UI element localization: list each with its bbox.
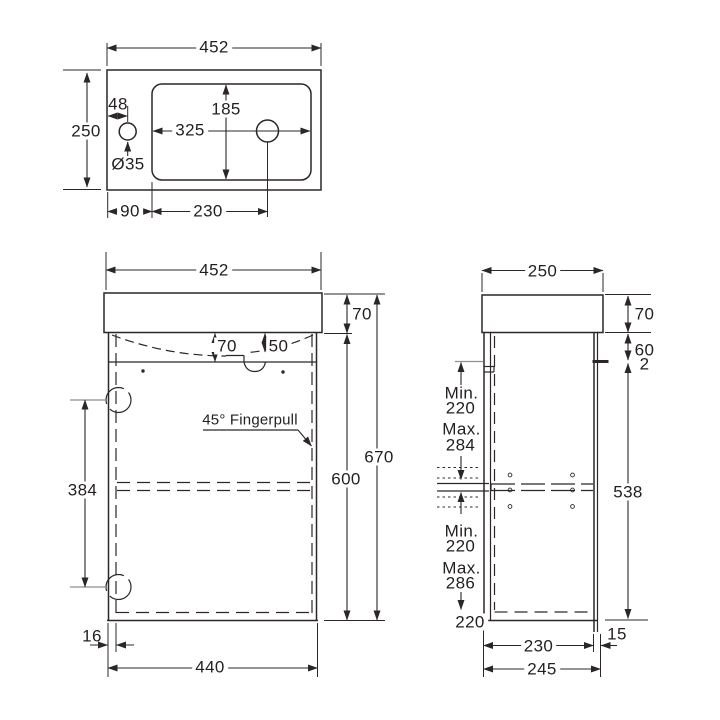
waste-offset-label: 230 — [190, 203, 226, 220]
bottom-value-label: 220 — [452, 613, 488, 630]
bowl-left-label: 70 — [214, 337, 240, 354]
door-width-label: 440 — [192, 659, 228, 676]
side-depth-label: 250 — [525, 262, 561, 279]
top-depth-label: 250 — [68, 123, 104, 140]
vanity-technical-drawing: 452 250 48 185 325 Ø35 90 230 452 70 70 … — [0, 0, 720, 720]
upper-max-value: 284 — [446, 436, 476, 453]
carcass-height-label: 538 — [610, 483, 646, 500]
basin-slab-side — [482, 295, 603, 333]
screw-dot-right — [281, 370, 284, 373]
front-width-label: 452 — [196, 262, 232, 279]
screw-dot-left — [141, 369, 144, 372]
base-depth-label: 230 — [521, 637, 557, 654]
fingerpull-note: 45° Fingerpull — [202, 413, 298, 428]
front-view-dimensions — [70, 252, 385, 677]
hinge-top — [106, 388, 131, 413]
side-view — [482, 295, 609, 632]
bowl-hidden-line-left — [112, 335, 226, 356]
tap-diameter-label: Ø35 — [111, 155, 144, 172]
waste-trap — [244, 362, 266, 372]
side-basin-height-label: 70 — [635, 306, 655, 323]
overall-depth-label: 245 — [524, 661, 560, 678]
gap-label: 2 — [640, 356, 650, 373]
tap-hole — [119, 123, 136, 140]
tap-offset-label: 48 — [108, 96, 128, 113]
basin-length-label: 325 — [172, 121, 208, 138]
cabinet-height-label: 600 — [328, 470, 364, 487]
overall-height-label: 670 — [361, 449, 397, 466]
lower-max-value: 286 — [446, 575, 476, 592]
fingerpull-leader — [298, 430, 312, 446]
door-thickness-label: 16 — [82, 628, 102, 645]
top-view — [107, 70, 321, 217]
hinge-spacing-label: 384 — [65, 482, 101, 499]
basin-height-label: 70 — [352, 305, 372, 322]
top-width-label: 452 — [196, 39, 232, 56]
basin-width-label: 185 — [208, 101, 244, 118]
hinge-bottom — [106, 575, 131, 600]
basin-slab — [104, 293, 322, 333]
tap-from-left-label: 90 — [117, 203, 143, 220]
back-inset-label: 15 — [607, 626, 627, 643]
lower-min-value: 220 — [446, 538, 476, 555]
bowl-right-label: 50 — [266, 337, 292, 354]
upper-min-value: 220 — [446, 400, 476, 417]
